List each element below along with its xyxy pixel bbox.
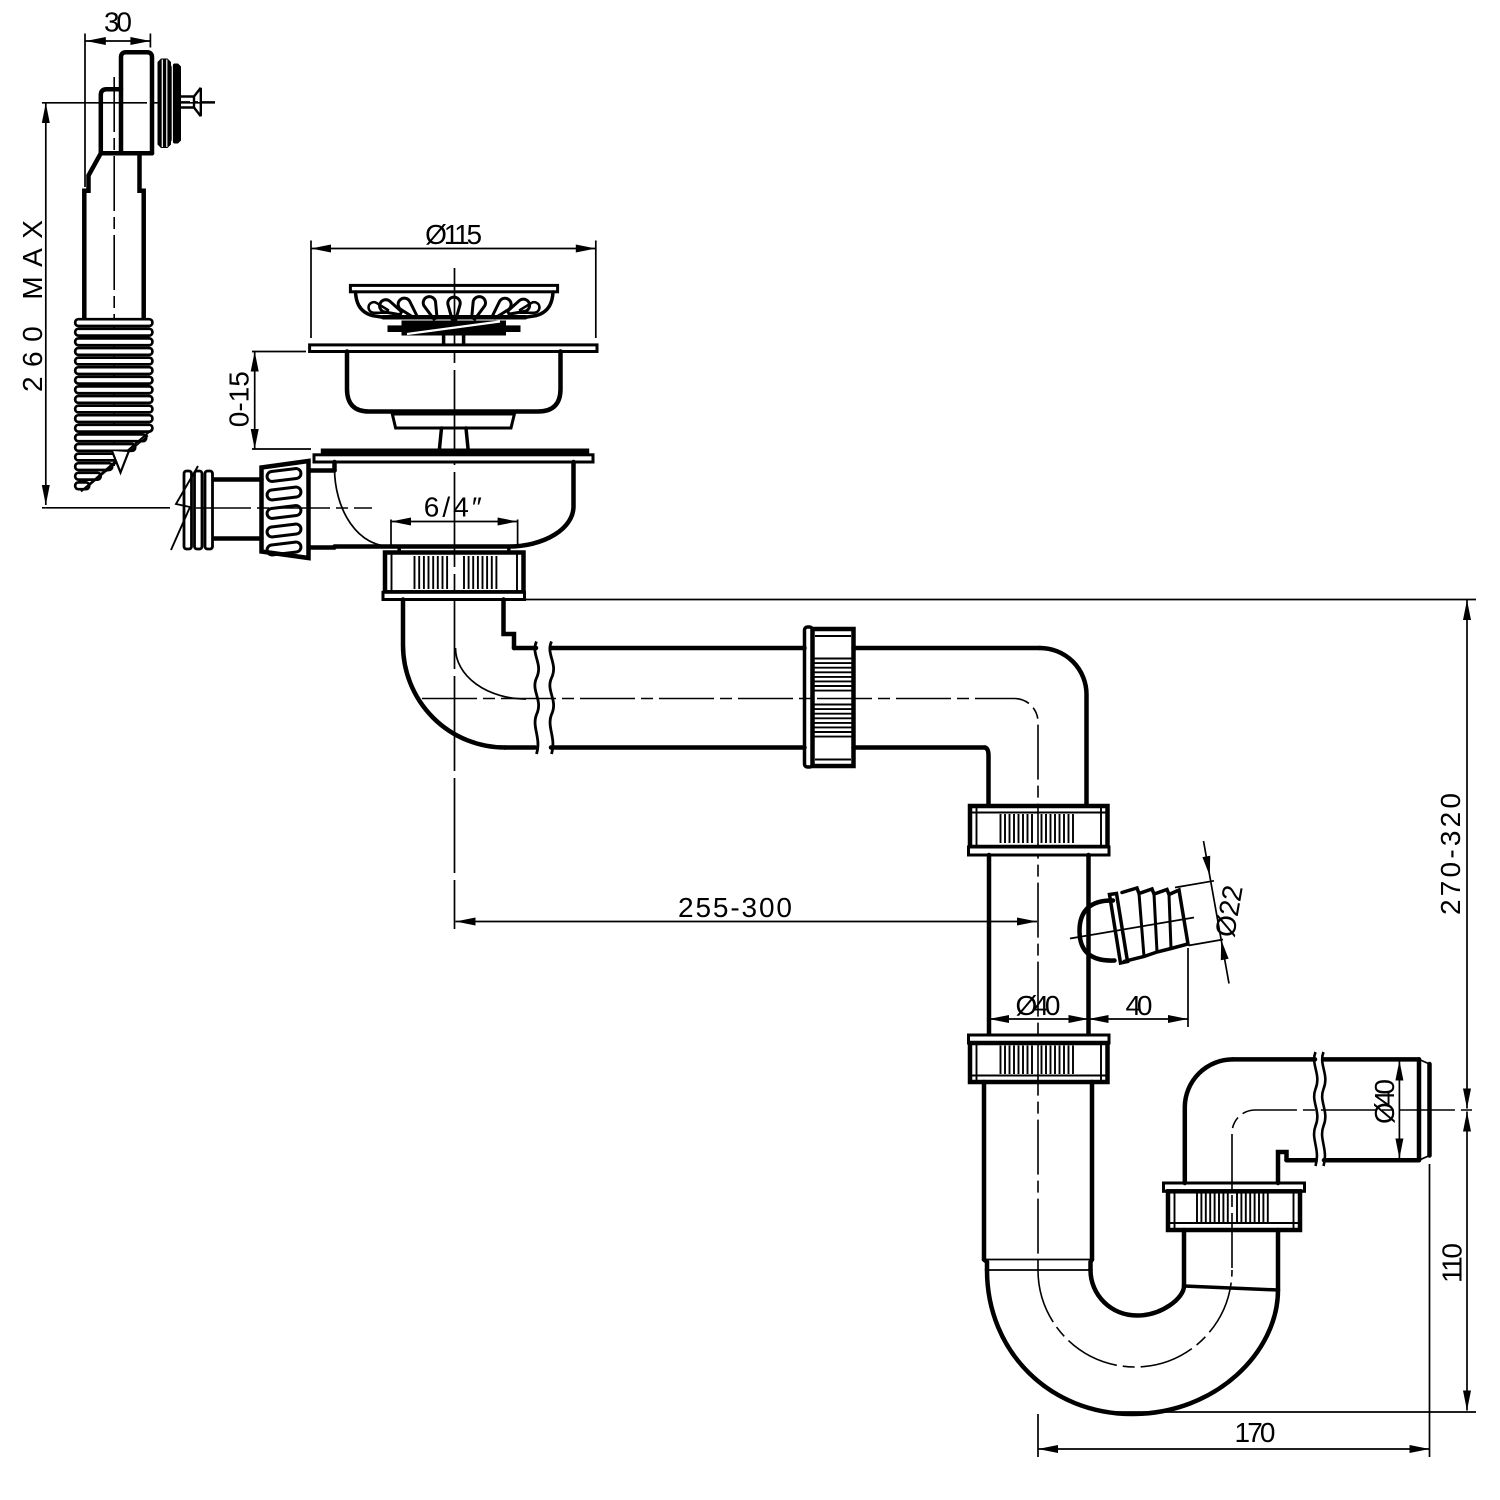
svg-text:6/4″: 6/4″ <box>424 492 482 523</box>
svg-text:40: 40 <box>1126 990 1153 1021</box>
svg-text:Ø40: Ø40 <box>1016 990 1061 1021</box>
svg-text:Ø115: Ø115 <box>425 219 482 250</box>
svg-text:30: 30 <box>104 7 132 38</box>
svg-text:0-15: 0-15 <box>224 371 255 427</box>
svg-text:Ø40: Ø40 <box>1369 1079 1400 1124</box>
svg-text:110: 110 <box>1437 1243 1468 1283</box>
svg-text:170: 170 <box>1235 1417 1276 1448</box>
